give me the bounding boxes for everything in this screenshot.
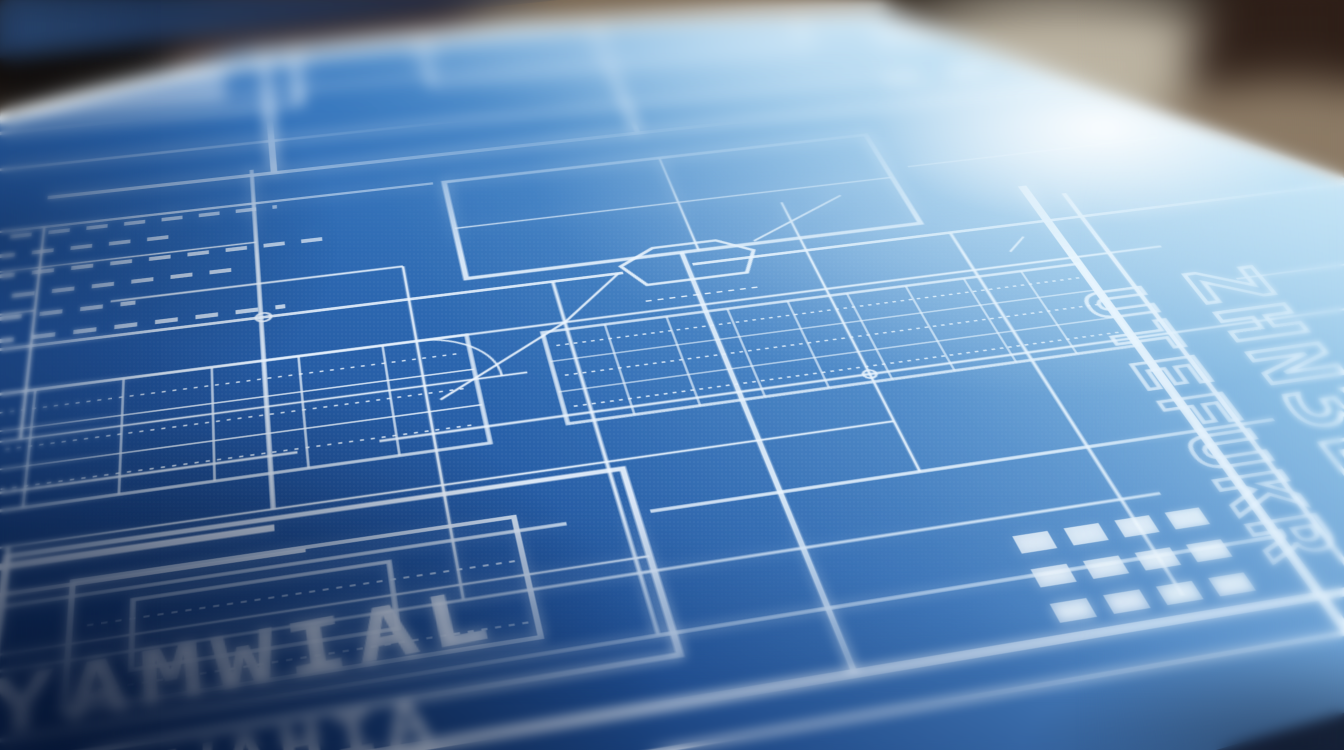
paper-edge-layer xyxy=(0,0,1344,750)
paper-edge-glow xyxy=(0,12,880,120)
blueprint-photo: ZHN3EIB UTEFUKR YAMWIAL TIWAHIA xyxy=(0,0,1344,750)
paper-edge-top-right xyxy=(878,12,1344,182)
